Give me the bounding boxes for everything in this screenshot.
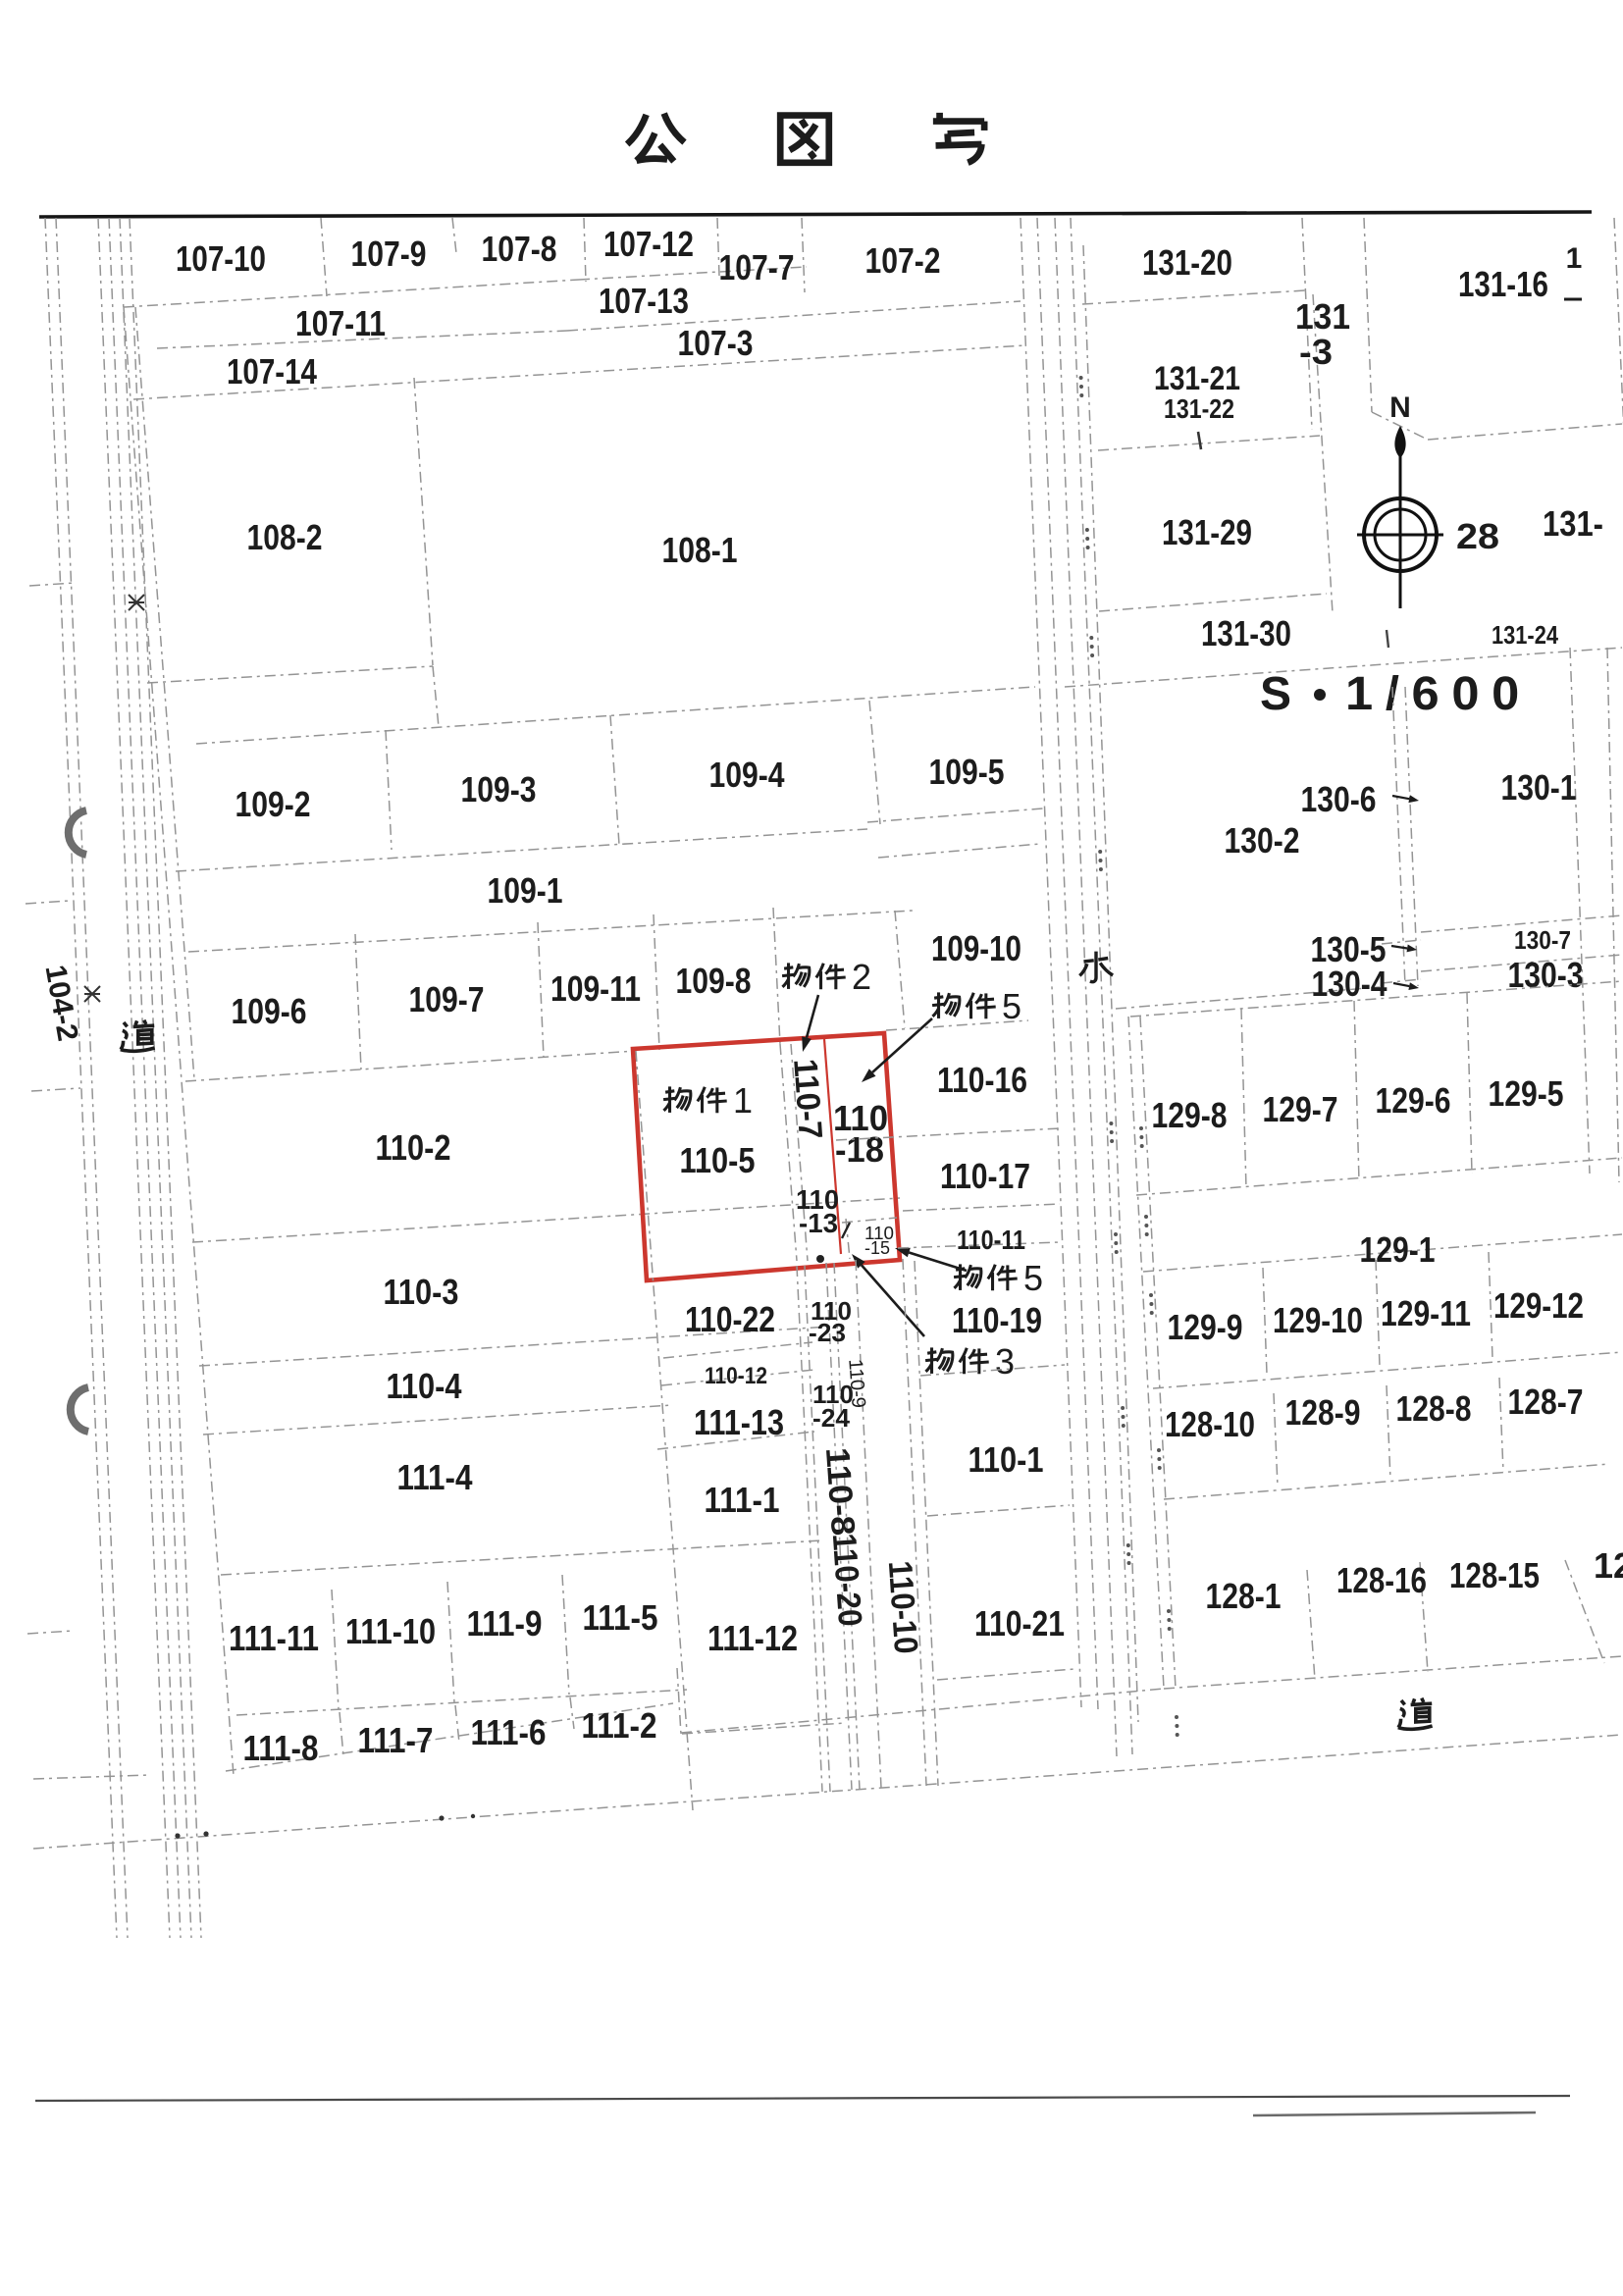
svg-text:109-10: 109-10 bbox=[931, 928, 1021, 968]
svg-text:111-4: 111-4 bbox=[397, 1457, 473, 1497]
svg-text:110-16: 110-16 bbox=[937, 1060, 1027, 1100]
svg-text:129-1: 129-1 bbox=[1360, 1229, 1436, 1270]
svg-text:131-24: 131-24 bbox=[1492, 620, 1558, 650]
svg-text:110-10: 110-10 bbox=[881, 1559, 925, 1654]
svg-text:-24: -24 bbox=[812, 1403, 851, 1433]
svg-text:107-3: 107-3 bbox=[678, 323, 754, 363]
svg-text:109-7: 109-7 bbox=[409, 979, 485, 1019]
svg-text:107-7: 107-7 bbox=[719, 247, 795, 287]
svg-text:110-7: 110-7 bbox=[786, 1058, 829, 1140]
svg-text:N: N bbox=[1389, 391, 1411, 424]
svg-text:109-11: 109-11 bbox=[550, 968, 641, 1009]
svg-text:130-6: 130-6 bbox=[1301, 779, 1377, 819]
svg-text:107-12: 107-12 bbox=[603, 224, 694, 264]
svg-text:107-11: 107-11 bbox=[295, 303, 386, 343]
svg-text:111-13: 111-13 bbox=[694, 1402, 784, 1442]
svg-text:107-8: 107-8 bbox=[482, 229, 557, 269]
svg-text:111-2: 111-2 bbox=[582, 1705, 657, 1746]
svg-text:111-6: 111-6 bbox=[471, 1712, 547, 1752]
svg-text:110-12: 110-12 bbox=[705, 1363, 767, 1389]
svg-text:2: 2 bbox=[852, 957, 871, 997]
svg-text:131-: 131- bbox=[1543, 503, 1603, 544]
svg-text:3: 3 bbox=[995, 1341, 1015, 1382]
svg-text:1: 1 bbox=[1566, 242, 1583, 275]
svg-text:128-7: 128-7 bbox=[1508, 1382, 1584, 1422]
svg-text:131-30: 131-30 bbox=[1201, 613, 1291, 653]
svg-text:28: 28 bbox=[1456, 516, 1499, 556]
svg-text:129-9: 129-9 bbox=[1168, 1307, 1243, 1347]
svg-text:130-4: 130-4 bbox=[1312, 964, 1387, 1004]
svg-text:111-7: 111-7 bbox=[358, 1720, 434, 1760]
svg-text:109-4: 109-4 bbox=[709, 755, 785, 795]
svg-text:5: 5 bbox=[1023, 1258, 1043, 1298]
svg-text:130-2: 130-2 bbox=[1225, 820, 1300, 861]
svg-text:108-2: 108-2 bbox=[247, 517, 323, 557]
svg-text:111-1: 111-1 bbox=[705, 1480, 780, 1520]
svg-text:109-1: 109-1 bbox=[488, 870, 563, 911]
svg-text:109-2: 109-2 bbox=[236, 784, 311, 824]
svg-text:-23: -23 bbox=[809, 1318, 846, 1347]
svg-text:109-3: 109-3 bbox=[461, 769, 537, 809]
svg-text:111-10: 111-10 bbox=[345, 1611, 436, 1651]
svg-text:1: 1 bbox=[733, 1080, 753, 1121]
svg-text:111-11: 111-11 bbox=[229, 1618, 319, 1658]
svg-text:109-6: 109-6 bbox=[232, 991, 307, 1031]
svg-text:129-8: 129-8 bbox=[1152, 1095, 1228, 1135]
svg-text:128-9: 128-9 bbox=[1285, 1392, 1361, 1433]
svg-text:110-5: 110-5 bbox=[680, 1140, 756, 1180]
svg-text:110-20: 110-20 bbox=[825, 1532, 869, 1627]
svg-text:110-3: 110-3 bbox=[384, 1272, 459, 1312]
svg-text:130-7: 130-7 bbox=[1514, 925, 1571, 955]
svg-text:131: 131 bbox=[1295, 296, 1350, 337]
svg-text:-18: -18 bbox=[835, 1129, 884, 1170]
svg-text:128-15: 128-15 bbox=[1449, 1555, 1540, 1595]
svg-text:107-9: 107-9 bbox=[351, 234, 427, 274]
svg-text:131-16: 131-16 bbox=[1458, 264, 1548, 304]
svg-text:110-11: 110-11 bbox=[957, 1225, 1025, 1255]
svg-text:129-11: 129-11 bbox=[1381, 1293, 1471, 1333]
svg-text:S: S bbox=[1260, 668, 1291, 720]
svg-text:107-2: 107-2 bbox=[865, 240, 941, 281]
svg-text:110-2: 110-2 bbox=[376, 1127, 451, 1168]
svg-text:128-10: 128-10 bbox=[1165, 1404, 1255, 1444]
svg-text:111-8: 111-8 bbox=[243, 1728, 319, 1768]
svg-text:128-1: 128-1 bbox=[1206, 1576, 1282, 1616]
svg-text:129-6: 129-6 bbox=[1376, 1080, 1451, 1121]
svg-text:110-1: 110-1 bbox=[969, 1439, 1044, 1480]
svg-text:131-29: 131-29 bbox=[1162, 512, 1252, 552]
svg-text:131-20: 131-20 bbox=[1142, 242, 1232, 283]
svg-text:-3: -3 bbox=[1299, 332, 1333, 372]
svg-text:-15: -15 bbox=[864, 1238, 890, 1258]
svg-text:129-10: 129-10 bbox=[1273, 1300, 1363, 1340]
svg-text:130-3: 130-3 bbox=[1508, 955, 1584, 995]
svg-text:110-9: 110-9 bbox=[844, 1358, 868, 1408]
svg-text:129-12: 129-12 bbox=[1493, 1285, 1584, 1326]
svg-text:110-4: 110-4 bbox=[387, 1366, 462, 1406]
svg-text:107-10: 107-10 bbox=[176, 238, 266, 279]
svg-text:-13: -13 bbox=[799, 1208, 838, 1238]
svg-text:110-21: 110-21 bbox=[974, 1603, 1065, 1644]
svg-text:110-19: 110-19 bbox=[952, 1300, 1042, 1340]
svg-text:110-22: 110-22 bbox=[685, 1299, 775, 1339]
svg-text:111-5: 111-5 bbox=[583, 1597, 658, 1638]
svg-text:111-9: 111-9 bbox=[467, 1603, 543, 1644]
svg-text:109-5: 109-5 bbox=[929, 752, 1005, 792]
svg-text:109-8: 109-8 bbox=[676, 961, 752, 1001]
svg-text:129-5: 129-5 bbox=[1489, 1073, 1564, 1114]
svg-text:130-1: 130-1 bbox=[1501, 767, 1577, 808]
svg-text:107-13: 107-13 bbox=[599, 281, 689, 321]
svg-text:110-17: 110-17 bbox=[940, 1156, 1030, 1196]
svg-text:110-8: 110-8 bbox=[818, 1446, 862, 1537]
svg-text:131-22: 131-22 bbox=[1164, 393, 1234, 424]
svg-text:5: 5 bbox=[1002, 986, 1021, 1026]
svg-text:107-14: 107-14 bbox=[227, 351, 317, 391]
svg-text:1/600: 1/600 bbox=[1345, 668, 1532, 720]
svg-text:128-16: 128-16 bbox=[1336, 1560, 1427, 1600]
svg-text:108-1: 108-1 bbox=[662, 530, 738, 570]
svg-text:111-12: 111-12 bbox=[707, 1618, 798, 1658]
svg-text:128-8: 128-8 bbox=[1396, 1388, 1472, 1429]
svg-text:131-21: 131-21 bbox=[1154, 360, 1240, 397]
svg-text:129-7: 129-7 bbox=[1263, 1089, 1338, 1129]
svg-text:12: 12 bbox=[1594, 1545, 1623, 1586]
